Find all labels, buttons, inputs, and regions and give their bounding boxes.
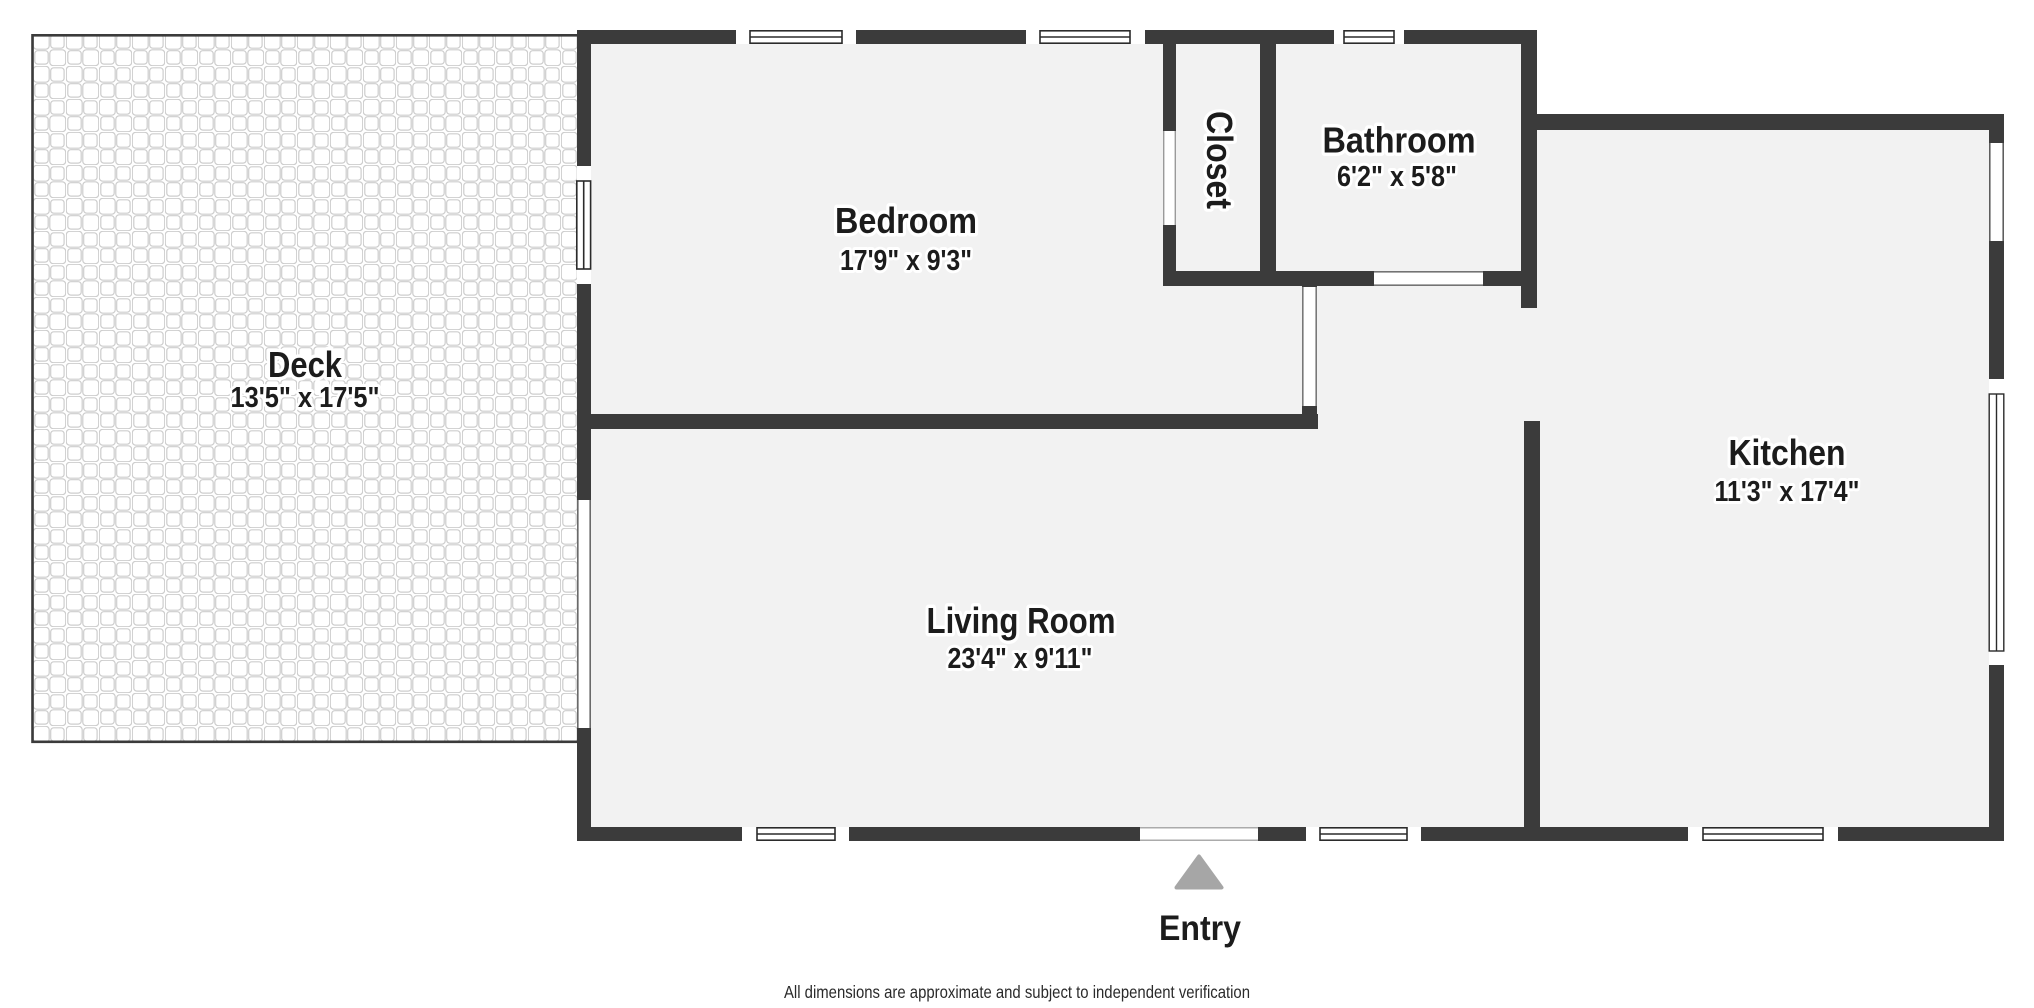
svg-text:Entry: Entry (1159, 909, 1241, 948)
svg-text:Bedroom: Bedroom (835, 200, 977, 241)
svg-text:Bathroom: Bathroom (1323, 120, 1476, 161)
svg-text:6'2" x 5'8": 6'2" x 5'8" (1337, 161, 1457, 193)
svg-text:13'5" x 17'5": 13'5" x 17'5" (231, 382, 380, 414)
svg-text:Living Room: Living Room (927, 600, 1116, 641)
svg-text:23'4" x 9'11": 23'4" x 9'11" (948, 643, 1093, 675)
svg-text:All dimensions are approximate: All dimensions are approximate and subje… (784, 982, 1250, 1002)
svg-text:Kitchen: Kitchen (1729, 432, 1846, 473)
svg-text:17'9" x 9'3": 17'9" x 9'3" (840, 245, 972, 277)
svg-text:Closet: Closet (1199, 111, 1240, 209)
svg-text:Deck: Deck (268, 344, 343, 385)
svg-text:11'3" x 17'4": 11'3" x 17'4" (1715, 476, 1860, 508)
